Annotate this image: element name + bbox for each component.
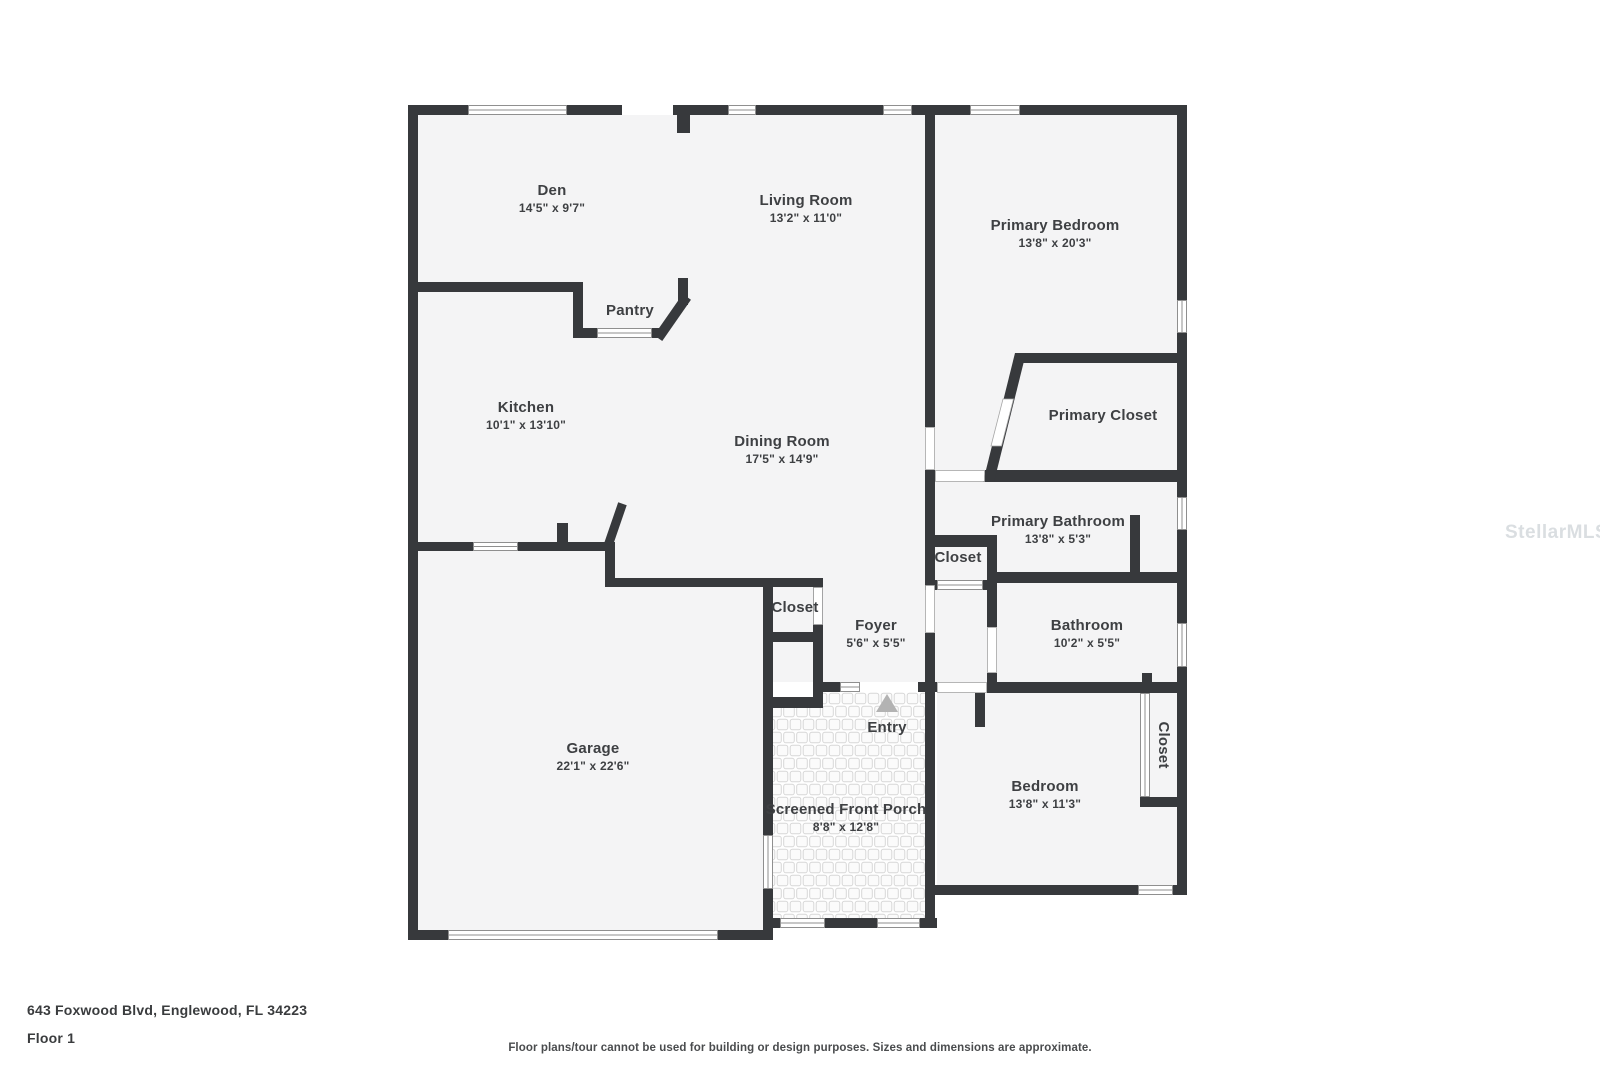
room-label-dining-room: Dining Room 17'5" x 14'9" xyxy=(734,433,830,467)
floor-label: Floor 1 xyxy=(27,1030,75,1046)
room-dims: 10'2" x 5'5" xyxy=(1051,635,1123,651)
room-name: Bedroom xyxy=(1009,778,1081,796)
room-name: Primary Closet xyxy=(1049,407,1158,425)
room-label-primary-bathroom: Primary Bathroom 13'8" x 5'3" xyxy=(991,513,1125,547)
room-label-hall-closet: Closet xyxy=(934,549,981,567)
room-name: Foyer xyxy=(846,617,905,635)
room-name: Primary Bathroom xyxy=(991,513,1125,531)
room-label-pantry: Pantry xyxy=(606,302,654,320)
room-label-den: Den 14'5" x 9'7" xyxy=(519,182,585,216)
room-name: Primary Bedroom xyxy=(991,217,1120,235)
room-label-living-room: Living Room 13'2" x 11'0" xyxy=(759,192,852,226)
room-label-primary-closet: Primary Closet xyxy=(1049,407,1158,425)
room-label-bedroom-closet: Closet xyxy=(1154,721,1172,768)
room-label-primary-bedroom: Primary Bedroom 13'8" x 20'3" xyxy=(991,217,1120,251)
room-name: Kitchen xyxy=(486,399,566,417)
room-name: Screened Front Porch xyxy=(766,801,927,819)
room-label-foyer: Foyer 5'6" x 5'5" xyxy=(846,617,905,651)
room-name: Closet xyxy=(771,599,818,617)
room-name: Closet xyxy=(1154,721,1172,768)
room-dims: 5'6" x 5'5" xyxy=(846,635,905,651)
room-name: Garage xyxy=(556,740,629,758)
room-name: Entry xyxy=(867,719,906,737)
room-dims: 14'5" x 9'7" xyxy=(519,200,585,216)
room-dims: 10'1" x 13'10" xyxy=(486,417,566,433)
room-label-garage: Garage 22'1" x 22'6" xyxy=(556,740,629,774)
room-label-screened-front-porch: Screened Front Porch 8'8" x 12'8" xyxy=(766,801,927,835)
room-dims: 13'8" x 20'3" xyxy=(991,235,1120,251)
floorplan-page: Den 14'5" x 9'7" Living Room 13'2" x 11'… xyxy=(0,0,1600,1066)
disclaimer-text: Floor plans/tour cannot be used for buil… xyxy=(508,1042,1091,1054)
room-dims: 22'1" x 22'6" xyxy=(556,758,629,774)
room-label-entry: Entry xyxy=(867,719,906,737)
room-dims: 13'2" x 11'0" xyxy=(759,210,852,226)
floorplan-drawing xyxy=(0,0,1600,1066)
room-name: Den xyxy=(519,182,585,200)
room-label-bathroom: Bathroom 10'2" x 5'5" xyxy=(1051,617,1123,651)
room-label-garage-closet: Closet xyxy=(771,599,818,617)
room-name: Dining Room xyxy=(734,433,830,451)
room-name: Closet xyxy=(934,549,981,567)
room-name: Living Room xyxy=(759,192,852,210)
room-dims: 8'8" x 12'8" xyxy=(766,819,927,835)
room-dims: 13'8" x 5'3" xyxy=(991,531,1125,547)
room-label-kitchen: Kitchen 10'1" x 13'10" xyxy=(486,399,566,433)
address-text: 643 Foxwood Blvd, Englewood, FL 34223 xyxy=(27,1002,307,1018)
watermark: StellarMLS xyxy=(1505,522,1600,544)
room-name: Bathroom xyxy=(1051,617,1123,635)
room-label-bedroom: Bedroom 13'8" x 11'3" xyxy=(1009,778,1081,812)
room-dims: 17'5" x 14'9" xyxy=(734,451,830,467)
room-dims: 13'8" x 11'3" xyxy=(1009,796,1081,812)
room-name: Pantry xyxy=(606,302,654,320)
